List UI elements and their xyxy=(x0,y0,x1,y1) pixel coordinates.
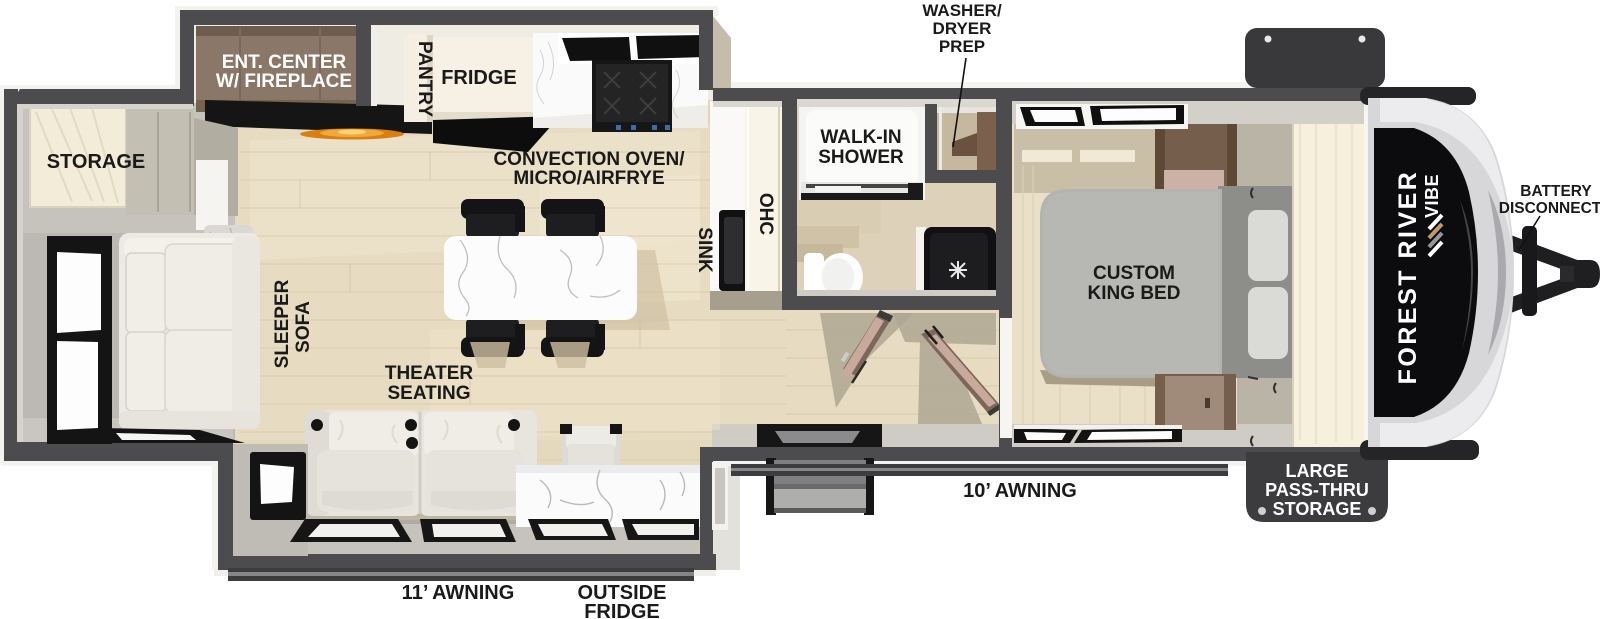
svg-text:PASS-THRU: PASS-THRU xyxy=(1265,480,1369,500)
svg-text:MICRO/AIRFRYE: MICRO/AIRFRYE xyxy=(513,168,664,189)
svg-text:10’ AWNING: 10’ AWNING xyxy=(963,480,1077,502)
svg-text:OHC: OHC xyxy=(755,193,776,236)
svg-text:SLEEPER: SLEEPER xyxy=(272,279,293,368)
svg-text:DRYER: DRYER xyxy=(933,19,992,38)
svg-text:CUSTOM: CUSTOM xyxy=(1093,263,1175,284)
svg-text:WALK-IN: WALK-IN xyxy=(820,127,901,148)
svg-text:SHOWER: SHOWER xyxy=(818,147,904,168)
svg-text:KING BED: KING BED xyxy=(1088,283,1181,304)
svg-text:SEATING: SEATING xyxy=(387,383,470,404)
svg-text:SOFA: SOFA xyxy=(293,301,314,353)
svg-text:FOREST RIVER: FOREST RIVER xyxy=(1394,170,1422,385)
svg-text:W/ FIREPLACE: W/ FIREPLACE xyxy=(216,71,352,92)
svg-text:PREP: PREP xyxy=(939,37,985,56)
svg-text:SINK: SINK xyxy=(694,227,715,273)
svg-text:LARGE: LARGE xyxy=(1286,461,1349,481)
svg-text:CONVECTION OVEN/: CONVECTION OVEN/ xyxy=(493,149,685,170)
svg-text:11’ AWNING: 11’ AWNING xyxy=(402,582,515,604)
svg-text:STORAGE: STORAGE xyxy=(1273,499,1362,519)
svg-text:DISCONNECT: DISCONNECT xyxy=(1499,200,1600,217)
svg-text:WASHER/: WASHER/ xyxy=(922,1,1002,20)
svg-text:ENT. CENTER: ENT. CENTER xyxy=(222,52,347,73)
svg-text:THEATER: THEATER xyxy=(385,363,474,384)
svg-text:FRIDGE: FRIDGE xyxy=(441,67,517,89)
svg-text:STORAGE: STORAGE xyxy=(47,151,146,173)
svg-text:FRIDGE: FRIDGE xyxy=(584,601,660,619)
svg-text:BATTERY: BATTERY xyxy=(1520,183,1592,200)
svg-text:VIBE: VIBE xyxy=(1422,174,1442,218)
svg-text:PANTRY: PANTRY xyxy=(414,41,435,117)
